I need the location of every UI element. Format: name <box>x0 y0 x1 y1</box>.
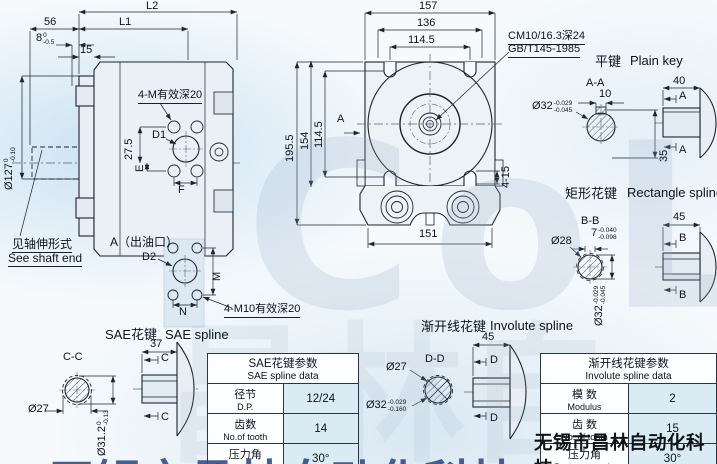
dim-114-5-top: 114.5 <box>408 35 435 47</box>
dim-37: 37 <box>150 339 162 351</box>
label-f: F <box>178 185 185 197</box>
dim-151: 151 <box>419 229 437 241</box>
dim-dia31-2: Ø31.20-0.13 <box>97 410 110 456</box>
see-shaft-note-en: See shaft end <box>8 252 82 267</box>
dim-114-5-left: 114.5 <box>314 121 326 148</box>
dim-m: M <box>212 272 224 281</box>
section-label-dd: D-D <box>425 354 445 366</box>
plain-key-title-en: Plain key <box>630 54 683 68</box>
dim-n: N <box>179 307 187 319</box>
cutting-arrow-d-top: D <box>490 355 498 367</box>
dim-dia28: Ø28 <box>551 236 572 248</box>
dim-45-involute: 45 <box>482 332 494 344</box>
cutting-arrow-b-top: B <box>679 233 686 245</box>
dim-dia27-sae: Ø27 <box>28 404 49 416</box>
involute-table-header: 渐开线花键参数 Involute spline data <box>541 354 717 384</box>
label-d2: D2 <box>142 252 156 264</box>
dim-4-15: 4-15 <box>501 166 513 188</box>
front-view-drawing <box>297 13 509 248</box>
table-row: 模 数Modulus 2 <box>541 384 717 414</box>
cutting-arrow-c-top: C <box>161 353 169 365</box>
involute-title-cn: 渐开线花键 <box>421 320 486 334</box>
rect-spline-title-cn: 矩形花键 <box>565 187 617 201</box>
dim-10: 10 <box>599 89 611 101</box>
cutting-arrow-c-bottom: C <box>161 412 169 424</box>
side-view-drawing <box>12 12 240 256</box>
cutting-arrow-b-bottom: B <box>679 290 686 302</box>
sae-title-en: SAE spline <box>165 328 229 342</box>
dim-15: 15 <box>80 45 92 57</box>
pump-technical-drawing: CoLa 昌林自动 L2 L1 56 80-0.5 15 Ø1270-0.10 … <box>0 0 717 464</box>
watermark-company-name: 无锡市昌林自动化科技 <box>534 429 717 464</box>
dim-dia32-rect: Ø32-0.029-0.045 <box>594 286 607 326</box>
dim-195-5: 195.5 <box>285 134 297 162</box>
dim-8-tol: 80-0.5 <box>36 33 54 46</box>
dim-27-5: 27.5 <box>124 139 136 160</box>
dim-dia27-involute: Ø27 <box>386 362 407 374</box>
dim-56: 56 <box>44 17 56 29</box>
plain-key-drawing <box>576 88 716 158</box>
label-e: E <box>135 165 147 172</box>
dim-157: 157 <box>419 1 437 13</box>
rect-spline-title-en: Rectangle spline <box>627 186 717 200</box>
note-4m-thread: 4-M有效深20 <box>138 90 202 104</box>
cutting-arrow-d-bottom: D <box>490 413 498 425</box>
dim-L1: L1 <box>119 17 131 29</box>
section-label-bb: B-B <box>581 216 599 228</box>
dim-35: 35 <box>659 150 671 162</box>
dim-40: 40 <box>673 76 685 88</box>
cutting-arrow-a-top: A <box>679 91 686 103</box>
outlet-title: A（出油口） <box>110 236 178 249</box>
involute-title-en: Involute spline <box>490 319 573 333</box>
dim-136: 136 <box>417 18 435 30</box>
dim-dia127: Ø1270-0.10 <box>4 147 17 190</box>
dim-dia32-involute: Ø32-0.029-0.160 <box>366 400 406 413</box>
note-4m10-thread: 4-M10有效深20 <box>224 304 300 318</box>
dim-dia32-plain: Ø32-0.029-0.045 <box>532 101 572 114</box>
plain-key-title-cn: 平键 <box>595 55 621 69</box>
label-section-a: A <box>337 114 344 126</box>
sae-table-header: SAE花键参数 SAE spline data <box>208 354 359 384</box>
table-row: 压力角Pressure angle 30° <box>208 444 359 464</box>
label-d1: D1 <box>152 130 166 142</box>
cutting-arrow-a-bottom: A <box>679 145 686 157</box>
table-row: 齿数No.of tooth 14 <box>208 414 359 444</box>
table-row: 径节D.P. 12/24 <box>208 384 359 414</box>
sae-spline-table: SAE花键参数 SAE spline data 径节D.P. 12/24 齿数N… <box>207 353 359 464</box>
dim-154: 154 <box>300 132 312 150</box>
section-label-cc: C-C <box>63 352 83 364</box>
dim-7-tol: 7-0.040-0.098 <box>591 228 617 241</box>
dim-45-rect: 45 <box>673 212 685 224</box>
note-cm10-line2: GB/T145-1985 <box>508 44 580 58</box>
dim-L2: L2 <box>146 1 158 13</box>
